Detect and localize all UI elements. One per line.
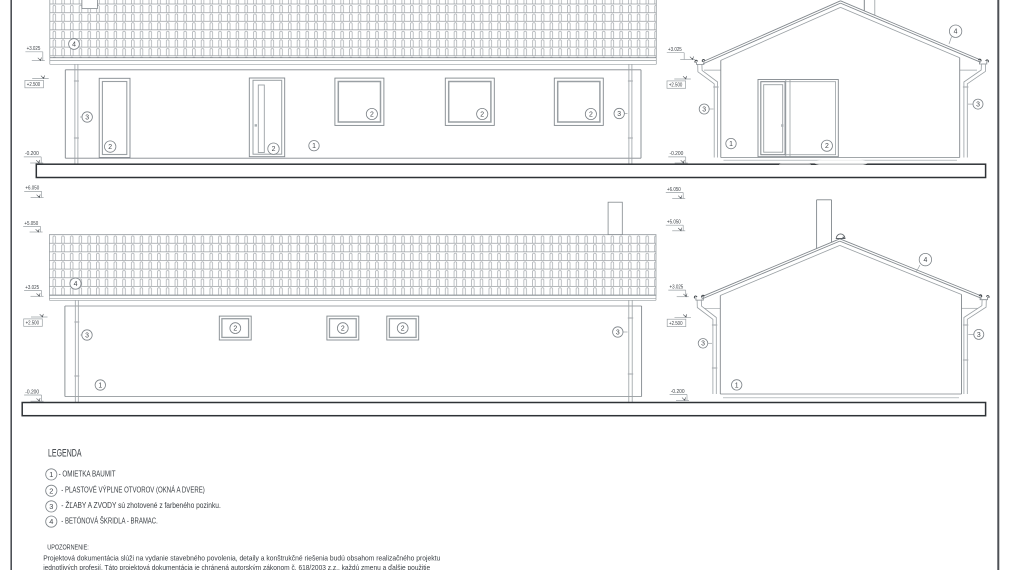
svg-text:- ŽĽABY A ZVODY sú zhotovené z: - ŽĽABY A ZVODY sú zhotovené z farbeného… — [61, 501, 221, 510]
svg-text:3: 3 — [85, 114, 89, 121]
svg-text:3: 3 — [976, 102, 980, 109]
svg-text:-0.200: -0.200 — [670, 151, 684, 157]
svg-text:-0.200: -0.200 — [25, 389, 39, 395]
svg-text:+5.050: +5.050 — [24, 221, 38, 227]
svg-text:+6.050: +6.050 — [25, 186, 39, 192]
svg-text:2: 2 — [825, 143, 829, 150]
svg-text:- OMIETKA BAUMIT: - OMIETKA BAUMIT — [59, 470, 116, 479]
svg-text:1: 1 — [98, 382, 102, 389]
svg-text:2: 2 — [341, 326, 345, 333]
svg-text:+3.025: +3.025 — [25, 285, 39, 291]
svg-text:3: 3 — [616, 329, 620, 336]
svg-text:4: 4 — [954, 29, 958, 36]
svg-text:3: 3 — [977, 332, 981, 339]
svg-text:2: 2 — [233, 326, 237, 333]
svg-text:-0.200: -0.200 — [671, 389, 685, 395]
svg-text:+6.050: +6.050 — [667, 187, 681, 193]
svg-text:3: 3 — [85, 332, 89, 339]
svg-text:2: 2 — [370, 111, 374, 118]
svg-text:- PLASTOVÉ VÝPLNE OTVOROV (OKN: - PLASTOVÉ VÝPLNE OTVOROV (OKNÁ A DVERE) — [61, 486, 205, 495]
svg-text:4: 4 — [74, 281, 78, 288]
svg-text:+5.050: +5.050 — [667, 220, 681, 226]
svg-text:2: 2 — [49, 486, 53, 495]
svg-text:- BETÓNOVÁ ŠKRIDLA - BRAMAC.: - BETÓNOVÁ ŠKRIDLA - BRAMAC. — [61, 517, 158, 526]
svg-text:+3.025: +3.025 — [670, 284, 684, 290]
svg-text:3: 3 — [702, 106, 706, 113]
svg-text:+2.500: +2.500 — [27, 82, 40, 88]
svg-text:4: 4 — [923, 257, 927, 264]
svg-text:+3.025: +3.025 — [27, 46, 41, 52]
svg-text:3: 3 — [701, 341, 705, 348]
svg-text:4: 4 — [72, 41, 76, 48]
svg-text:2: 2 — [401, 326, 405, 333]
svg-text:2: 2 — [589, 111, 593, 118]
svg-text:2: 2 — [272, 146, 276, 153]
svg-text:jednotlivých profesií. Táto pr: jednotlivých profesií. Táto projektová d… — [42, 563, 430, 570]
svg-text:1: 1 — [312, 143, 316, 150]
svg-text:+2.500: +2.500 — [26, 321, 39, 327]
svg-text:-0.200: -0.200 — [25, 151, 39, 157]
svg-text:UPOZORNENIE:: UPOZORNENIE: — [47, 542, 89, 551]
svg-text:LEGENDA: LEGENDA — [48, 447, 82, 459]
svg-text:1: 1 — [49, 470, 53, 479]
svg-text:4: 4 — [49, 517, 53, 526]
svg-text:1: 1 — [735, 382, 739, 389]
svg-text:3: 3 — [49, 502, 53, 511]
svg-text:+2.500: +2.500 — [669, 83, 682, 89]
svg-text:2: 2 — [108, 144, 112, 151]
svg-text:+3.025: +3.025 — [668, 47, 682, 53]
svg-text:3: 3 — [617, 111, 621, 118]
svg-text:+2.500: +2.500 — [669, 321, 682, 327]
svg-text:1: 1 — [729, 141, 733, 148]
svg-text:2: 2 — [480, 111, 484, 118]
svg-text:Projektová dokumentácia slúži: Projektová dokumentácia slúži na vydanie… — [43, 554, 440, 563]
